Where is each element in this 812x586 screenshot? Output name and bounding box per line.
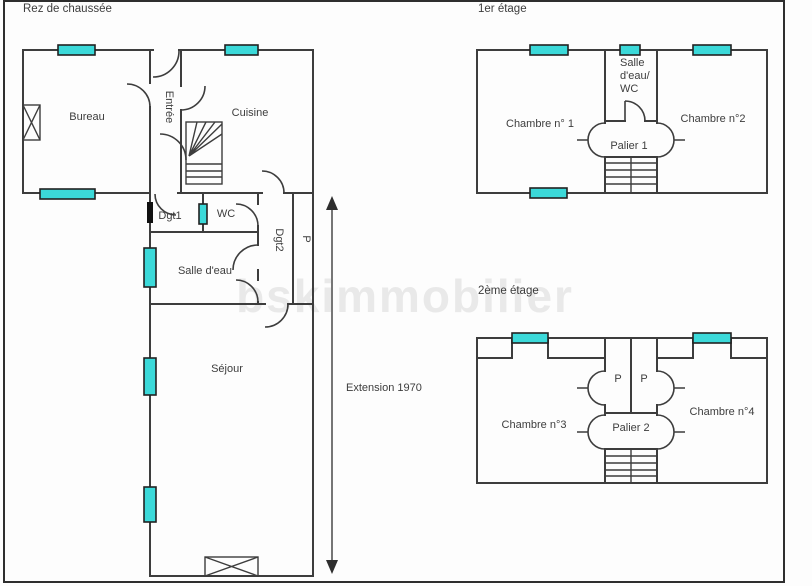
ground-floor-title: Rez de chaussée: [23, 3, 112, 15]
label-dgt1: Dgt1: [158, 210, 181, 222]
label-sejour: Séjour: [211, 363, 243, 375]
label-sdb-line1: Salle: [620, 57, 644, 69]
label-placard: P: [300, 235, 312, 242]
window: [144, 248, 156, 287]
label-sdb-line3: WC: [620, 83, 638, 95]
floor-plan-page: bskimmobilier Rez de chaussée: [0, 0, 812, 586]
label-chambre4: Chambre n°4: [690, 406, 755, 418]
window: [693, 45, 731, 55]
window: [512, 333, 548, 343]
window: [530, 188, 567, 198]
extension-arrow: [326, 196, 338, 574]
window: [620, 45, 640, 55]
window: [144, 487, 156, 522]
first-floor-title: 1er étage: [478, 3, 527, 15]
window: [530, 45, 568, 55]
label-entree: Entrée: [163, 91, 175, 123]
label-p-left: P: [614, 373, 621, 385]
label-wc: WC: [217, 208, 235, 220]
label-chambre3: Chambre n°3: [502, 419, 567, 431]
window: [40, 189, 95, 199]
label-bureau: Bureau: [69, 111, 104, 123]
label-palier1: Palier 1: [610, 140, 647, 152]
label-chambre2: Chambre n°2: [681, 113, 746, 125]
ground-floor-chimneys: [23, 105, 258, 576]
second-floor-title: 2ème étage: [478, 285, 539, 297]
label-dgt2: Dgt2: [273, 228, 285, 251]
window: [693, 333, 731, 343]
wc-window: [199, 204, 207, 224]
label-extension: Extension 1970: [346, 382, 422, 394]
window: [144, 358, 156, 395]
label-cuisine: Cuisine: [232, 107, 269, 119]
label-salle-eau: Salle d'eau: [178, 265, 232, 277]
crossed-box-sejour: [205, 557, 258, 576]
label-chambre1: Chambre n° 1: [506, 118, 574, 130]
window: [58, 45, 95, 55]
first-floor-plan: 1er étage Chambre n° 1 Salle: [477, 3, 767, 198]
second-floor-staircase: [605, 449, 657, 483]
label-sdb-line2: d'eau/: [620, 70, 651, 82]
first-floor-staircase: [605, 157, 657, 193]
label-palier2: Palier 2: [612, 422, 649, 434]
floor-plan-canvas: bskimmobilier Rez de chaussée: [0, 0, 812, 586]
crossed-box-bureau: [23, 105, 40, 140]
door-bar: [147, 202, 153, 223]
ground-floor-staircase: [186, 122, 222, 184]
label-p-right: P: [640, 373, 647, 385]
window: [225, 45, 258, 55]
